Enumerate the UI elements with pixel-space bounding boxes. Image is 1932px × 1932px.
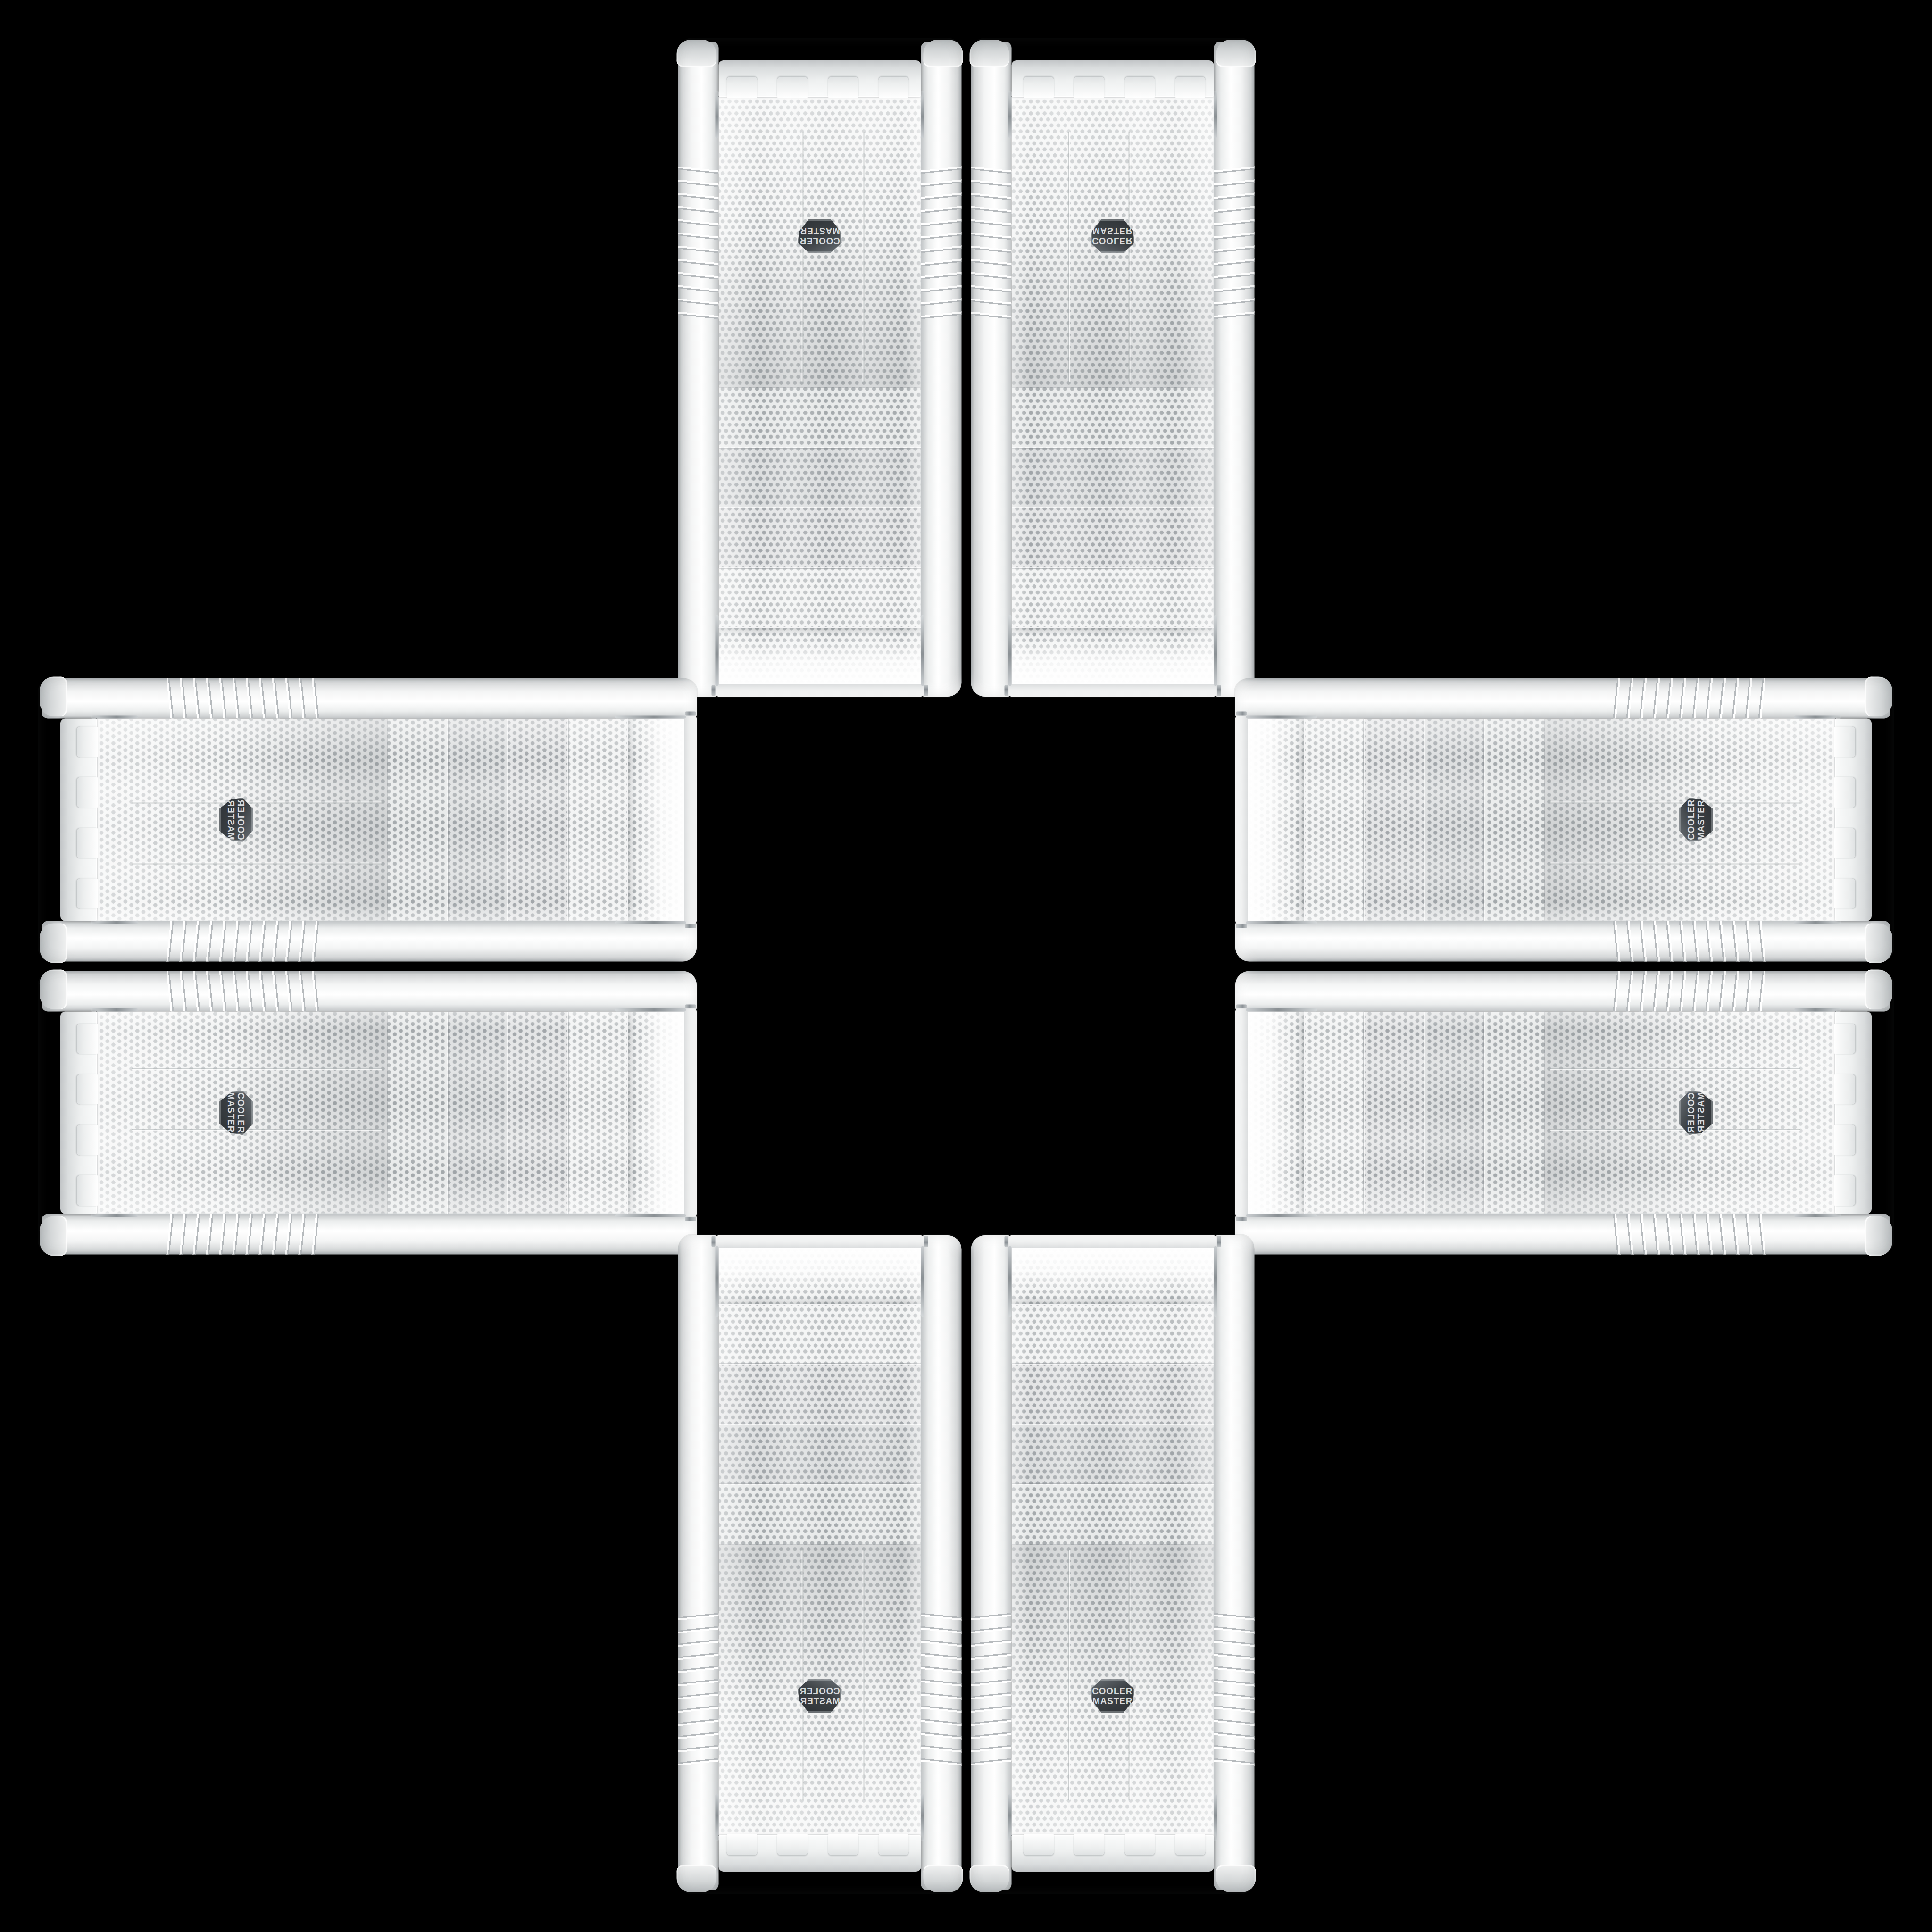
case-side-rail (921, 1235, 961, 1890)
badge-text-line: MASTER (1092, 1696, 1133, 1706)
chrome-accent (91, 1008, 138, 1011)
front-bottom-bezel (60, 1011, 97, 1214)
badge-text-line: COOLER (1092, 1686, 1133, 1696)
chrome-accent (921, 91, 924, 138)
case-side-rail (921, 42, 961, 697)
badge-text-line: COOLER (799, 236, 840, 246)
grip-ribs (971, 158, 1011, 325)
mesh-seam (863, 132, 864, 382)
mesh-seam (863, 1550, 864, 1800)
chrome-accent (1246, 1008, 1317, 1011)
drive-bay-cover (508, 718, 568, 921)
drive-bay-cover (1484, 718, 1545, 921)
pc-case-top-right: COOLERMASTER (971, 38, 1254, 698)
bezel-tab (1834, 1175, 1855, 1205)
bezel-tab (777, 1834, 807, 1855)
drive-bay-cover (508, 1011, 568, 1214)
case-foot (40, 923, 67, 963)
drive-bay-rows (1304, 718, 1545, 921)
drive-bay-cover (718, 448, 921, 508)
mesh-seam (1550, 863, 1800, 864)
bezel-tab (726, 77, 757, 98)
chrome-accent (91, 715, 138, 718)
grip-ribs (1607, 678, 1774, 718)
mesh-top-curve (1248, 1011, 1305, 1214)
case-foot (1216, 40, 1256, 67)
badge-face: COOLERMASTER (798, 219, 842, 253)
front-mesh-panel: COOLERMASTER (1011, 1248, 1214, 1835)
drive-bay-cover (448, 1011, 508, 1214)
drive-bay-cover (718, 568, 921, 628)
pc-case-right-bottom: COOLERMASTER (1234, 971, 1894, 1254)
bezel-tab (1834, 1024, 1855, 1054)
chrome-accent (1008, 615, 1011, 686)
case-slot-bottom-right: COOLERMASTER (971, 1234, 1254, 1894)
case-slot-top-left: COOLERMASTER (678, 38, 961, 698)
front-bottom-bezel (1835, 1011, 1872, 1214)
chrome-accent (1214, 1246, 1217, 1317)
case-side-rail (971, 42, 1011, 697)
drive-bay-cover (1484, 1011, 1545, 1214)
chrome-accent (615, 1008, 686, 1011)
chrome-accent (1214, 1794, 1217, 1841)
badge-face: COOLERMASTER (1091, 1679, 1135, 1713)
case-slot-right-bottom: COOLERMASTER (1234, 971, 1894, 1254)
bezel-tab (828, 77, 858, 98)
bezel-tab (77, 1024, 98, 1054)
chrome-accent (615, 921, 686, 924)
badge-text-line: COOLER (236, 799, 246, 840)
badge-face: COOLERMASTER (1679, 1091, 1713, 1135)
case-foot (40, 676, 67, 716)
front-bottom-bezel (60, 718, 97, 921)
chrome-accent (715, 1246, 718, 1317)
case-slot-bottom-left: COOLERMASTER (678, 1234, 961, 1894)
badge-face: COOLERMASTER (219, 798, 253, 842)
drive-bay-cover (718, 1424, 921, 1485)
bezel-tab (777, 77, 807, 98)
chrome-accent (1794, 921, 1841, 924)
bezel-tab (1834, 726, 1855, 757)
front-mesh-panel: COOLERMASTER (718, 1248, 921, 1835)
drive-bay-cover (1011, 1484, 1214, 1545)
case-side-rail (42, 1214, 697, 1254)
badge-text-line: MASTER (226, 799, 236, 840)
drive-bay-cover (1011, 1364, 1214, 1424)
bezel-tab (878, 77, 908, 98)
grip-ribs (921, 158, 961, 325)
chrome-accent (1214, 91, 1217, 138)
case-side-rail (1235, 971, 1890, 1011)
badge-text-line: MASTER (799, 226, 840, 236)
front-mesh-panel: COOLERMASTER (97, 1011, 684, 1214)
drive-bay-rows (718, 1304, 921, 1545)
mesh-top-curve (718, 627, 921, 684)
bezel-tab (1834, 828, 1855, 858)
chrome-accent (921, 1794, 924, 1841)
drive-bay-cover (1011, 387, 1214, 448)
drive-bay-cover (1364, 1011, 1424, 1214)
badge-text-line: COOLER (1686, 1092, 1696, 1133)
front-bottom-bezel (1835, 718, 1872, 921)
case-foot (923, 1865, 963, 1892)
chrome-accent (715, 615, 718, 686)
chrome-accent (1214, 615, 1217, 686)
pc-case-bottom-right: COOLERMASTER (971, 1234, 1254, 1894)
chrome-accent (1008, 1794, 1011, 1841)
mesh-top-curve (627, 1011, 684, 1214)
bezel-tab (77, 828, 98, 858)
chrome-accent (1246, 921, 1317, 924)
grip-ribs (1607, 971, 1774, 1011)
pc-case-bottom-left: COOLERMASTER (678, 1234, 961, 1894)
chrome-accent (1008, 91, 1011, 138)
badge-text-line: COOLER (799, 1686, 840, 1696)
drive-bay-rows (718, 387, 921, 628)
bezel-tab (1175, 77, 1205, 98)
case-foot (1865, 923, 1892, 963)
drive-bay-cover (1011, 1424, 1214, 1485)
bezel-tab (77, 777, 98, 807)
case-slot-left-top: COOLERMASTER (38, 678, 698, 961)
drive-bay-cover (1304, 718, 1365, 921)
mesh-seam (132, 1129, 382, 1130)
grip-ribs (971, 1607, 1011, 1774)
grip-ribs (1607, 1214, 1774, 1254)
case-side-rail (1235, 678, 1890, 718)
bezel-tab (1074, 1834, 1104, 1855)
case-foot (969, 40, 1009, 67)
cooler-master-badge: COOLERMASTER (1679, 798, 1713, 842)
badge-face: COOLERMASTER (219, 1091, 253, 1135)
mesh-seam (132, 863, 382, 864)
case-side-rail (42, 678, 697, 718)
front-top-cap (1008, 1235, 1216, 1248)
mesh-seam (1068, 132, 1069, 382)
bezel-tab (878, 1834, 908, 1855)
front-bottom-bezel (1011, 1835, 1214, 1872)
case-foot (969, 1865, 1009, 1892)
chrome-accent (921, 1246, 924, 1317)
cooler-master-badge: COOLERMASTER (219, 798, 253, 842)
bezel-tab (77, 1074, 98, 1104)
grip-ribs (921, 1607, 961, 1774)
drive-bay-cover (387, 718, 448, 921)
front-mesh-panel: COOLERMASTER (718, 97, 921, 684)
case-foot (1865, 676, 1892, 716)
drive-bay-cover (718, 1364, 921, 1424)
bezel-tab (1834, 777, 1855, 807)
case-slot-right-top: COOLERMASTER (1234, 678, 1894, 961)
bezel-tab (828, 1834, 858, 1855)
mesh-top-curve (718, 1248, 921, 1305)
drive-bay-cover (568, 1011, 628, 1214)
drive-bay-rows (387, 1011, 628, 1214)
case-foot (40, 969, 67, 1009)
grip-ribs (678, 1607, 718, 1774)
badge-text-line: COOLER (1092, 236, 1133, 246)
drive-bay-cover (1011, 448, 1214, 508)
badge-text-line: MASTER (226, 1092, 236, 1133)
bezel-tab (1124, 77, 1155, 98)
front-top-cap (1235, 716, 1248, 924)
case-foot (1865, 1216, 1892, 1256)
case-side-rail (971, 1235, 1011, 1890)
cooler-master-badge: COOLERMASTER (1091, 1679, 1135, 1713)
front-bottom-bezel (718, 1835, 921, 1872)
cooler-master-badge: COOLERMASTER (1679, 1091, 1713, 1135)
mesh-seam (1129, 132, 1130, 382)
mesh-seam (802, 132, 803, 382)
chrome-accent (91, 1214, 138, 1217)
badge-face: COOLERMASTER (1679, 798, 1713, 842)
mesh-top-curve (1248, 718, 1305, 921)
grip-ribs (1607, 921, 1774, 961)
case-side-rail (42, 921, 697, 961)
grip-ribs (158, 678, 325, 718)
bezel-tab (1834, 1074, 1855, 1104)
chrome-accent (615, 1214, 686, 1217)
bezel-tab (1124, 1834, 1155, 1855)
pc-case-right-top: COOLERMASTER (1234, 678, 1894, 961)
bezel-tab (1024, 77, 1054, 98)
grip-ribs (1214, 158, 1254, 325)
pc-case-left-bottom: COOLERMASTER (38, 971, 698, 1254)
pc-case-left-top: COOLERMASTER (38, 678, 698, 961)
grip-ribs (158, 1214, 325, 1254)
grip-ribs (1214, 1607, 1254, 1774)
drive-bay-cover (1011, 1304, 1214, 1365)
front-mesh-panel: COOLERMASTER (1248, 1011, 1835, 1214)
bezel-tab (1834, 878, 1855, 908)
front-top-cap (1235, 1008, 1248, 1216)
mesh-seam (132, 802, 382, 803)
drive-bay-rows (1304, 1011, 1545, 1214)
case-foot (1216, 1865, 1256, 1892)
badge-text-line: COOLER (1686, 799, 1696, 840)
front-bottom-bezel (1011, 60, 1214, 97)
chrome-accent (715, 91, 718, 138)
mesh-top-curve (627, 718, 684, 921)
cooler-master-badge: COOLERMASTER (798, 219, 842, 253)
case-side-rail (1214, 1235, 1254, 1890)
case-side-rail (678, 42, 718, 697)
drive-bay-cover (1424, 718, 1485, 921)
drive-bay-cover (1011, 568, 1214, 628)
mesh-top-curve (1011, 627, 1214, 684)
mesh-seam (1068, 1550, 1069, 1800)
front-top-cap (716, 1235, 924, 1248)
drive-bay-cover (1304, 1011, 1365, 1214)
front-bottom-bezel (718, 60, 921, 97)
cooler-master-badge: COOLERMASTER (219, 1091, 253, 1135)
badge-text-line: MASTER (1696, 799, 1706, 840)
badge-face: COOLERMASTER (1091, 219, 1135, 253)
chrome-accent (921, 615, 924, 686)
chrome-accent (1794, 715, 1841, 718)
badge-text-line: MASTER (1696, 1092, 1706, 1133)
mesh-seam (132, 1068, 382, 1069)
bezel-tab (77, 726, 98, 757)
front-mesh-panel: COOLERMASTER (1248, 718, 1835, 921)
grip-ribs (678, 158, 718, 325)
mesh-seam (1550, 1129, 1800, 1130)
case-side-rail (1235, 921, 1890, 961)
case-foot (676, 40, 716, 67)
mesh-top-curve (1011, 1248, 1214, 1305)
case-foot (676, 1865, 716, 1892)
front-mesh-panel: COOLERMASTER (97, 718, 684, 921)
badge-text-line: COOLER (236, 1092, 246, 1133)
case-foot (923, 40, 963, 67)
badge-text-line: MASTER (1092, 226, 1133, 236)
chrome-accent (1008, 1246, 1011, 1317)
front-mesh-panel: COOLERMASTER (1011, 97, 1214, 684)
badge-text-line: MASTER (799, 1696, 840, 1706)
badge-face: COOLERMASTER (798, 1679, 842, 1713)
drive-bay-cover (387, 1011, 448, 1214)
chrome-accent (715, 1794, 718, 1841)
grip-ribs (158, 921, 325, 961)
bezel-tab (1024, 1834, 1054, 1855)
cooler-master-badge: COOLERMASTER (798, 1679, 842, 1713)
case-side-rail (42, 971, 697, 1011)
mesh-seam (1550, 1068, 1800, 1069)
grip-ribs (158, 971, 325, 1011)
drive-bay-cover (1011, 508, 1214, 568)
bezel-tab (1175, 1834, 1205, 1855)
drive-bay-cover (718, 508, 921, 568)
drive-bay-rows (1011, 1304, 1214, 1545)
drive-bay-rows (387, 718, 628, 921)
case-foot (1865, 969, 1892, 1009)
bezel-tab (77, 878, 98, 908)
product-collage: COOLERMASTERCOOLERMASTERCOOLERMASTERCOOL… (0, 0, 1932, 1932)
pc-case-top-left: COOLERMASTER (678, 38, 961, 698)
cooler-master-badge: COOLERMASTER (1091, 219, 1135, 253)
case-side-rail (678, 1235, 718, 1890)
drive-bay-cover (718, 1304, 921, 1365)
bezel-tab (726, 1834, 757, 1855)
drive-bay-cover (568, 718, 628, 921)
mesh-seam (802, 1550, 803, 1800)
drive-bay-cover (448, 718, 508, 921)
mesh-seam (1550, 802, 1800, 803)
drive-bay-cover (1364, 718, 1424, 921)
bezel-tab (77, 1175, 98, 1205)
chrome-accent (1246, 715, 1317, 718)
mesh-seam (1129, 1550, 1130, 1800)
drive-bay-cover (1424, 1011, 1485, 1214)
case-slot-top-right: COOLERMASTER (971, 38, 1254, 698)
front-top-cap (684, 716, 697, 924)
front-top-cap (716, 684, 924, 697)
bezel-tab (1834, 1124, 1855, 1155)
chrome-accent (1794, 1214, 1841, 1217)
case-foot (40, 1216, 67, 1256)
front-top-cap (1008, 684, 1216, 697)
front-top-cap (684, 1008, 697, 1216)
case-side-rail (1235, 1214, 1890, 1254)
bezel-tab (77, 1124, 98, 1155)
chrome-accent (615, 715, 686, 718)
case-side-rail (1214, 42, 1254, 697)
case-slot-left-bottom: COOLERMASTER (38, 971, 698, 1254)
chrome-accent (1246, 1214, 1317, 1217)
drive-bay-rows (1011, 387, 1214, 628)
drive-bay-cover (718, 1484, 921, 1545)
drive-bay-cover (718, 387, 921, 448)
chrome-accent (1794, 1008, 1841, 1011)
chrome-accent (91, 921, 138, 924)
bezel-tab (1074, 77, 1104, 98)
